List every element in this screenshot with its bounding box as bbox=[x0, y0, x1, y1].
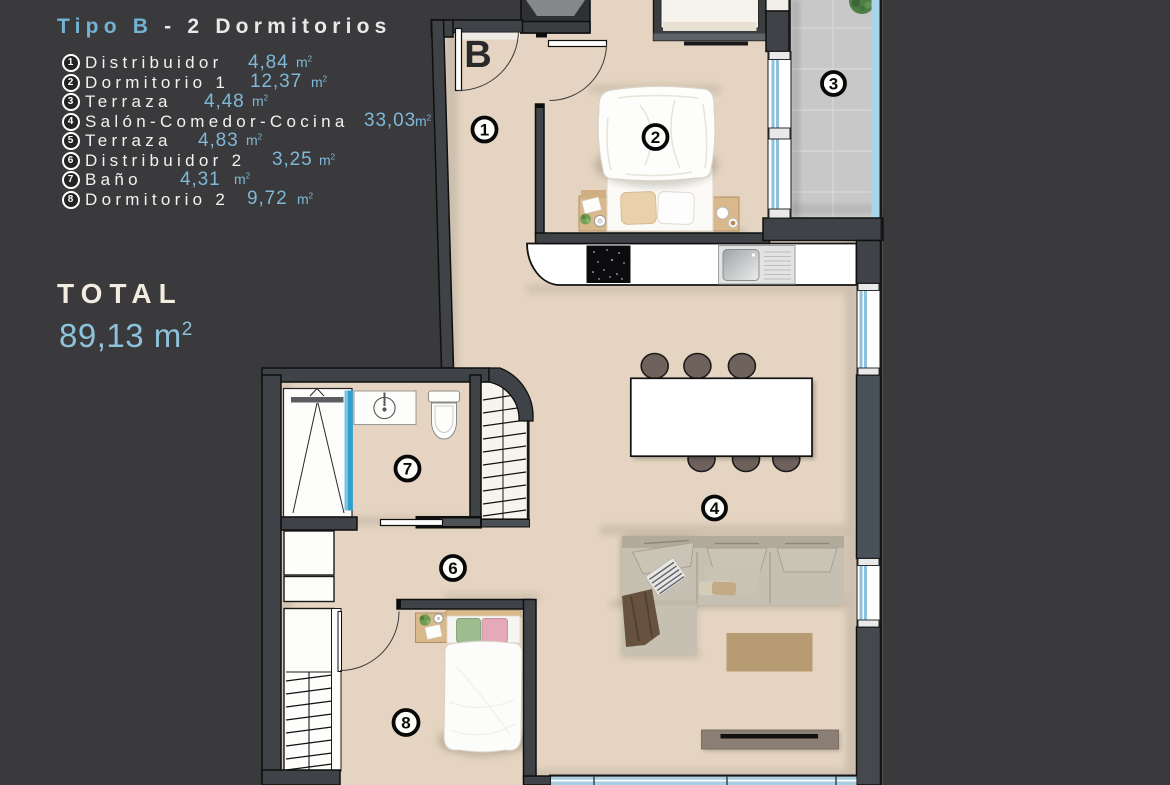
svg-text:7: 7 bbox=[403, 460, 412, 479]
svg-text:6: 6 bbox=[448, 559, 457, 578]
svg-text:4: 4 bbox=[710, 499, 720, 518]
svg-text:8: 8 bbox=[401, 714, 410, 733]
svg-text:3: 3 bbox=[829, 75, 838, 94]
svg-text:2: 2 bbox=[651, 128, 660, 147]
svg-text:B: B bbox=[464, 34, 491, 76]
svg-text:1: 1 bbox=[480, 121, 489, 140]
